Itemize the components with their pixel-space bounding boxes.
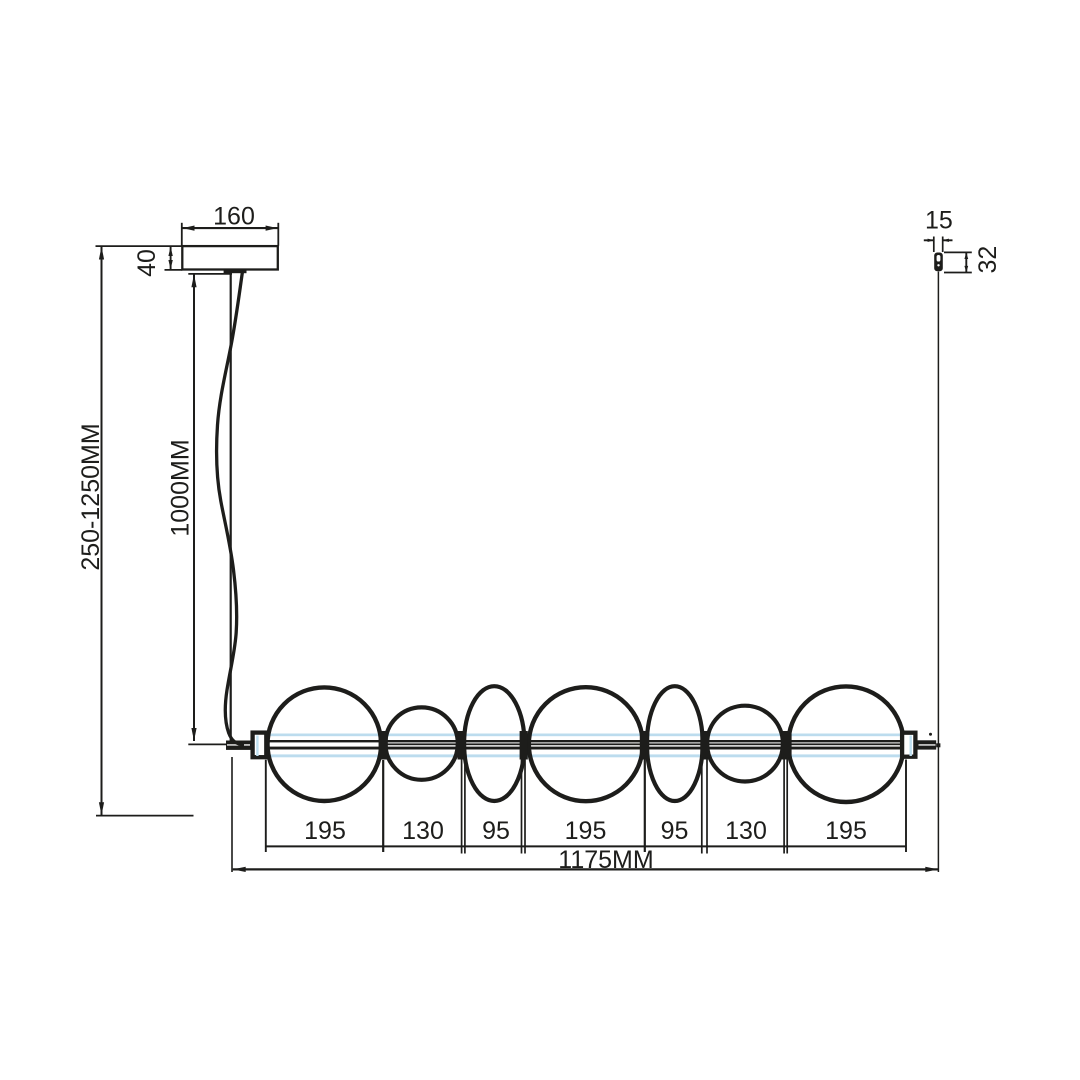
svg-text:1175MM: 1175MM <box>558 846 653 874</box>
svg-text:95: 95 <box>661 817 689 845</box>
svg-text:95: 95 <box>482 817 510 845</box>
svg-text:130: 130 <box>402 817 444 845</box>
svg-text:195: 195 <box>565 817 607 845</box>
svg-text:32: 32 <box>974 246 1002 274</box>
svg-text:40: 40 <box>133 249 161 277</box>
svg-text:15: 15 <box>925 207 953 235</box>
svg-text:160: 160 <box>213 202 255 230</box>
svg-text:130: 130 <box>725 817 767 845</box>
svg-text:195: 195 <box>825 817 867 845</box>
svg-text:195: 195 <box>304 817 346 845</box>
svg-text:250-1250MM: 250-1250MM <box>77 423 105 570</box>
svg-text:1000MM: 1000MM <box>167 439 195 536</box>
